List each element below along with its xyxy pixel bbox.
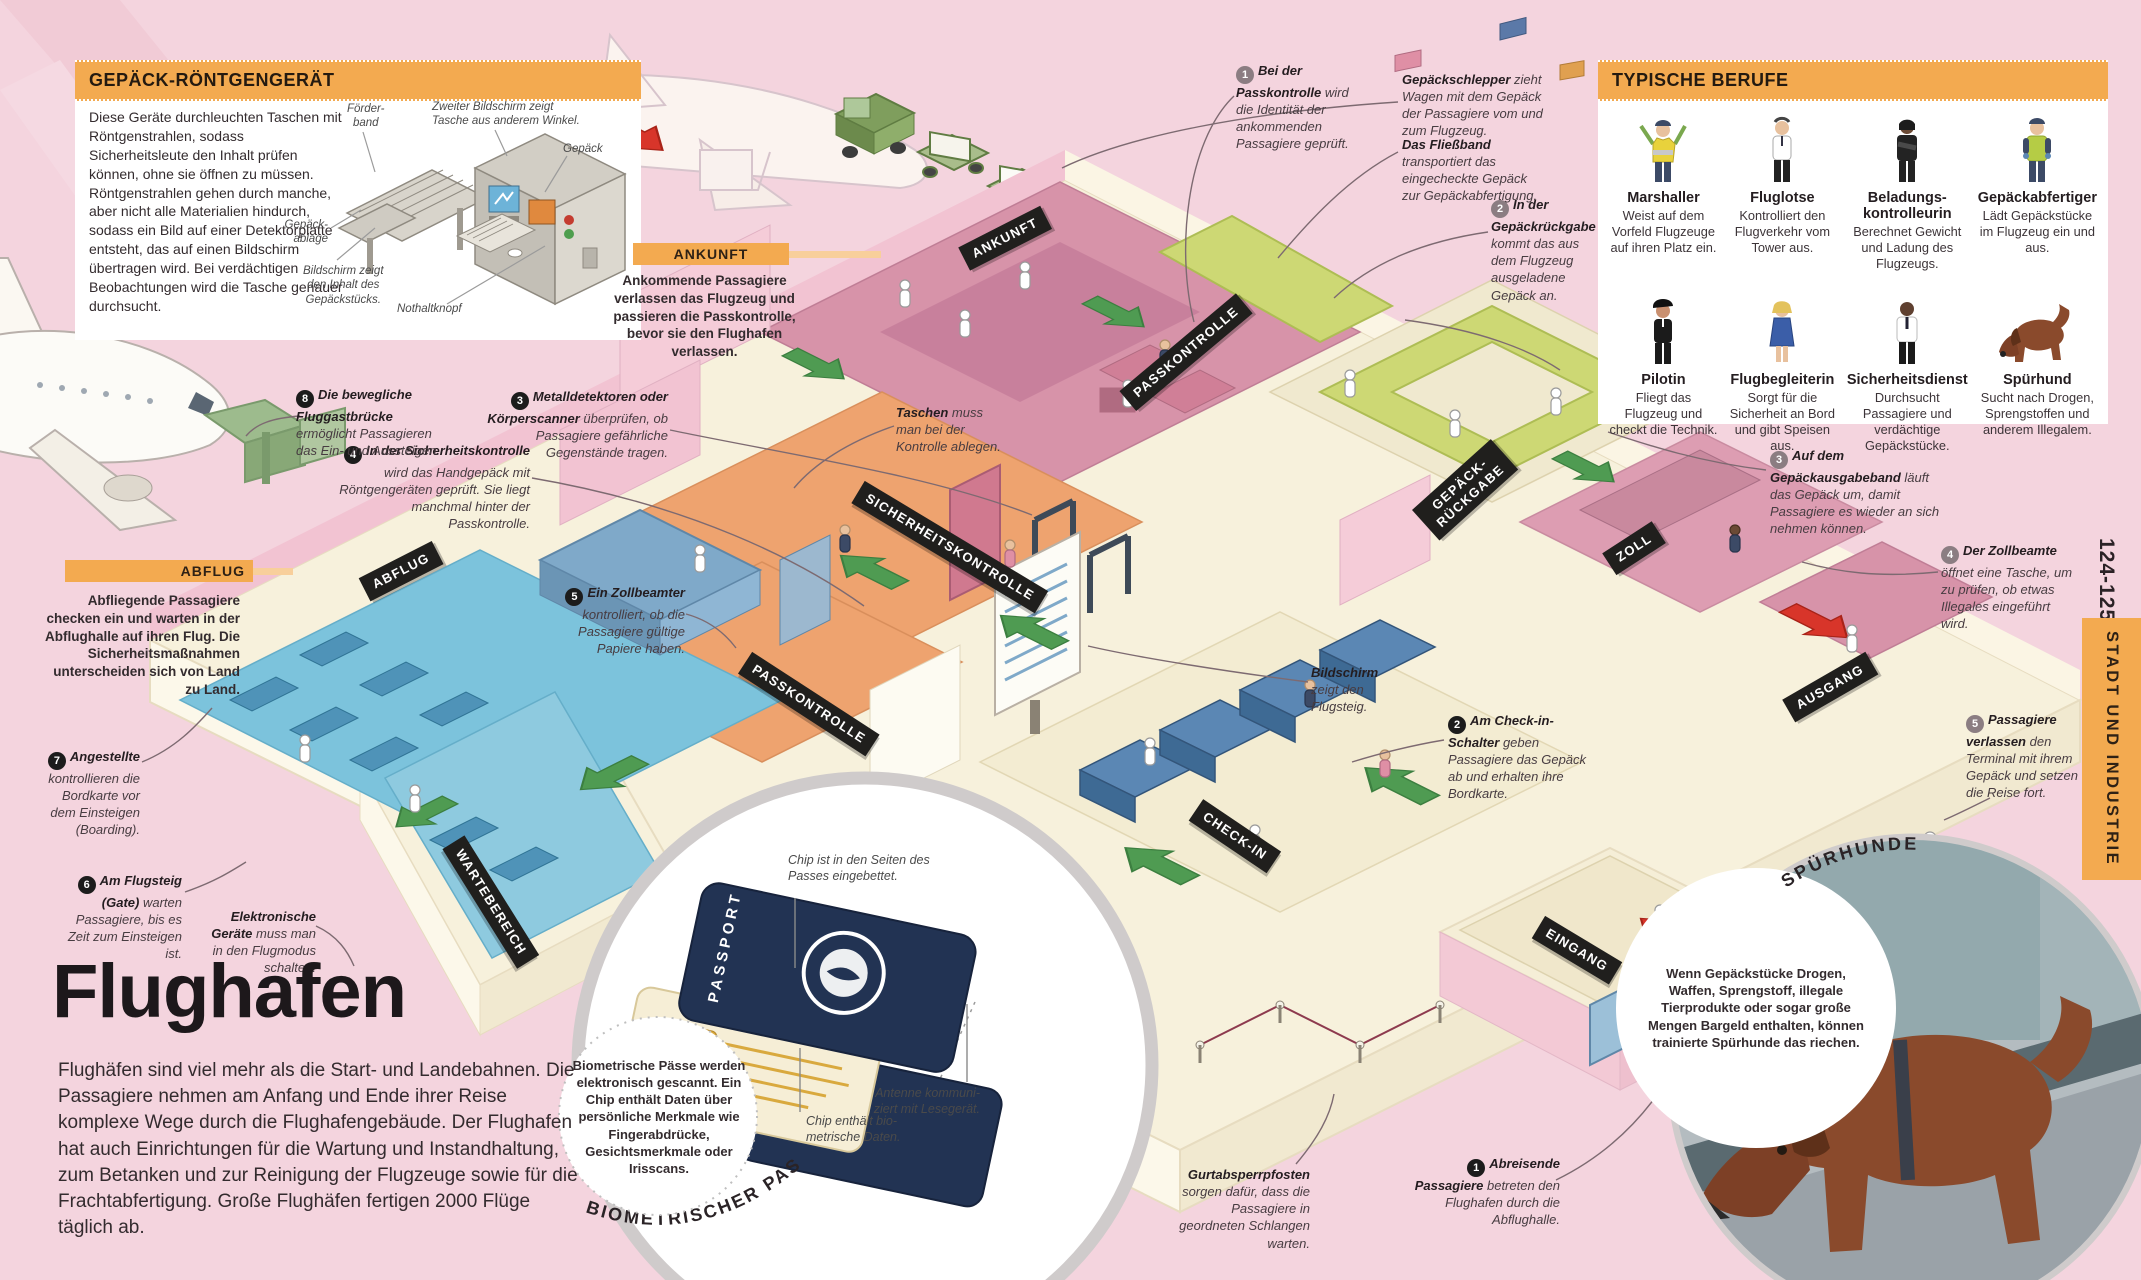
xray-label-stop: Nothaltknopf	[397, 302, 462, 316]
callout-fliessband: Das Fließbandtransportiert das eingechec…	[1402, 136, 1546, 205]
gepaeckabfertiger-figure-icon	[2005, 108, 2069, 186]
page-intro: Flughäfen sind viel mehr als die Start- …	[58, 1058, 586, 1242]
departure-step-5: 5Ein Zollbeamterkontrolliert, ob die Pas…	[545, 584, 685, 657]
page-title: Flughafen	[52, 948, 406, 1035]
abflug-section-tag: ABFLUG	[65, 560, 253, 582]
job-sicherheitsdienst: Sicherheitsdienst Durchsucht Passagiere …	[1842, 286, 1973, 458]
xray-box-title: GEPÄCK-RÖNTGENGERÄT	[75, 60, 641, 101]
flugbegleiterin-figure-icon	[1750, 290, 1814, 368]
job-beladungskontrolleurin: Beladungs- kontrolleurin Berechnet Gewic…	[1842, 104, 1973, 276]
ankunft-tag-stub	[789, 251, 881, 258]
xray-label-second-screen: Zweiter Bildschirm zeigt Tasche aus ande…	[432, 100, 580, 129]
xray-info-box: GEPÄCK-RÖNTGENGERÄT Diese Geräte durchle…	[75, 60, 641, 340]
passport-label-chip-edge: Chip ist in den Seiten des Passes eingeb…	[788, 853, 930, 884]
departure-step-8: 8Die bewegliche Fluggastbrückeermöglicht…	[296, 386, 450, 459]
passport-bubble-text: Biometrische Pässe werden elektronisch g…	[562, 1020, 756, 1214]
spuerhund-figure-icon	[1997, 290, 2077, 368]
chapter-tab: STADT UND INDUSTRIE	[2082, 618, 2141, 880]
arrival-step-1: 1Bei der Passkontrollewird die Identität…	[1236, 62, 1360, 153]
pilotin-figure-icon	[1631, 290, 1695, 368]
sicherheitsdienst-figure-icon	[1875, 290, 1939, 368]
abflug-tag-stub	[253, 568, 293, 575]
ankunft-section-tag: ANKUNFT	[633, 243, 789, 265]
jobs-box-title: TYPISCHE BERUFE	[1598, 60, 2108, 101]
callout-gepaeckschlepper: Gepäckschlepperzieht Wagen mit dem Gepäc…	[1402, 71, 1554, 140]
ankunft-section-body: Ankommende Passagiere verlassen das Flug…	[612, 272, 797, 361]
job-pilotin: Pilotin Fliegt das Flugzeug und checkt d…	[1604, 286, 1723, 458]
callout-bildschirm: Bildschirmzeigt den Flugsteig.	[1311, 664, 1407, 715]
passport-label-antenna: Antenne kommuni- ziert mit Lesegerät.	[850, 1086, 980, 1117]
arrival-step-5: 5Passagiere verlassenden Terminal mit ih…	[1966, 711, 2080, 802]
fluglotse-figure-icon	[1750, 108, 1814, 186]
job-fluglotse: Fluglotse Kontrolliert den Flugverkehr v…	[1723, 104, 1842, 276]
book-spread-flughafen: PASSPORT BIOMETRISCHER PASS	[0, 0, 2141, 1280]
departure-step-1: 1Abreisende Passagierebetreten den Flugh…	[1412, 1155, 1560, 1228]
job-flugbegleiterin: Flugbegleiterin Sorgt für die Sicherheit…	[1723, 286, 1842, 458]
arrival-step-3: 3Auf dem Gepäckausgabebandläuft das Gepä…	[1770, 447, 1942, 538]
abflug-section-body: Abfliegende Passagiere checken ein und w…	[38, 592, 240, 699]
job-spuerhund: Spürhund Sucht nach Drogen, Sprengstoffe…	[1973, 286, 2102, 458]
beladungskontrolleurin-figure-icon	[1875, 108, 1939, 186]
job-gepaeckabfertiger: Gepäckabfertiger Lädt Gepäckstücke im Fl…	[1973, 104, 2102, 276]
passport-label-chip-data: Chip enthält bio- metrische Daten.	[806, 1114, 900, 1145]
xray-label-bag: Gepäck	[563, 142, 603, 156]
arrival-step-2: 2In der Gepäckrückgabekommt das aus dem …	[1491, 196, 1603, 304]
departure-step-2: 2Am Check-in-Schaltergeben Passagiere da…	[1448, 712, 1600, 803]
callout-taschen: Taschenmuss man bei der Kontrolle ablege…	[896, 404, 1006, 455]
job-marshaller: Marshaller Weist auf dem Vorfeld Flugzeu…	[1604, 104, 1723, 276]
jobs-grid: Marshaller Weist auf dem Vorfeld Flugzeu…	[1604, 104, 2102, 458]
xray-label-screen: Bildschirm zeigt den Inhalt des Gepäckst…	[303, 264, 384, 307]
page-number: 124-125	[2094, 538, 2118, 622]
callout-gurtabsperrpfosten: Gurtabsperrpfostensorgen dafür, dass die…	[1172, 1166, 1310, 1252]
arrival-step-4: 4Der Zollbeamteöffnet eine Tasche, um zu…	[1941, 542, 2081, 633]
jobs-info-box: TYPISCHE BERUFE Marshaller Weist auf dem…	[1598, 60, 2108, 424]
xray-label-conveyor: Förder- band	[347, 102, 385, 131]
marshaller-figure-icon	[1631, 108, 1695, 186]
dog-bubble-text: Wenn Gepäckstücke Drogen, Waffen, Spreng…	[1622, 874, 1890, 1142]
xray-label-tray: Gepäck- ablage	[273, 218, 328, 247]
departure-step-7: 7Angestelltekontrollieren die Bordkarte …	[40, 748, 140, 839]
